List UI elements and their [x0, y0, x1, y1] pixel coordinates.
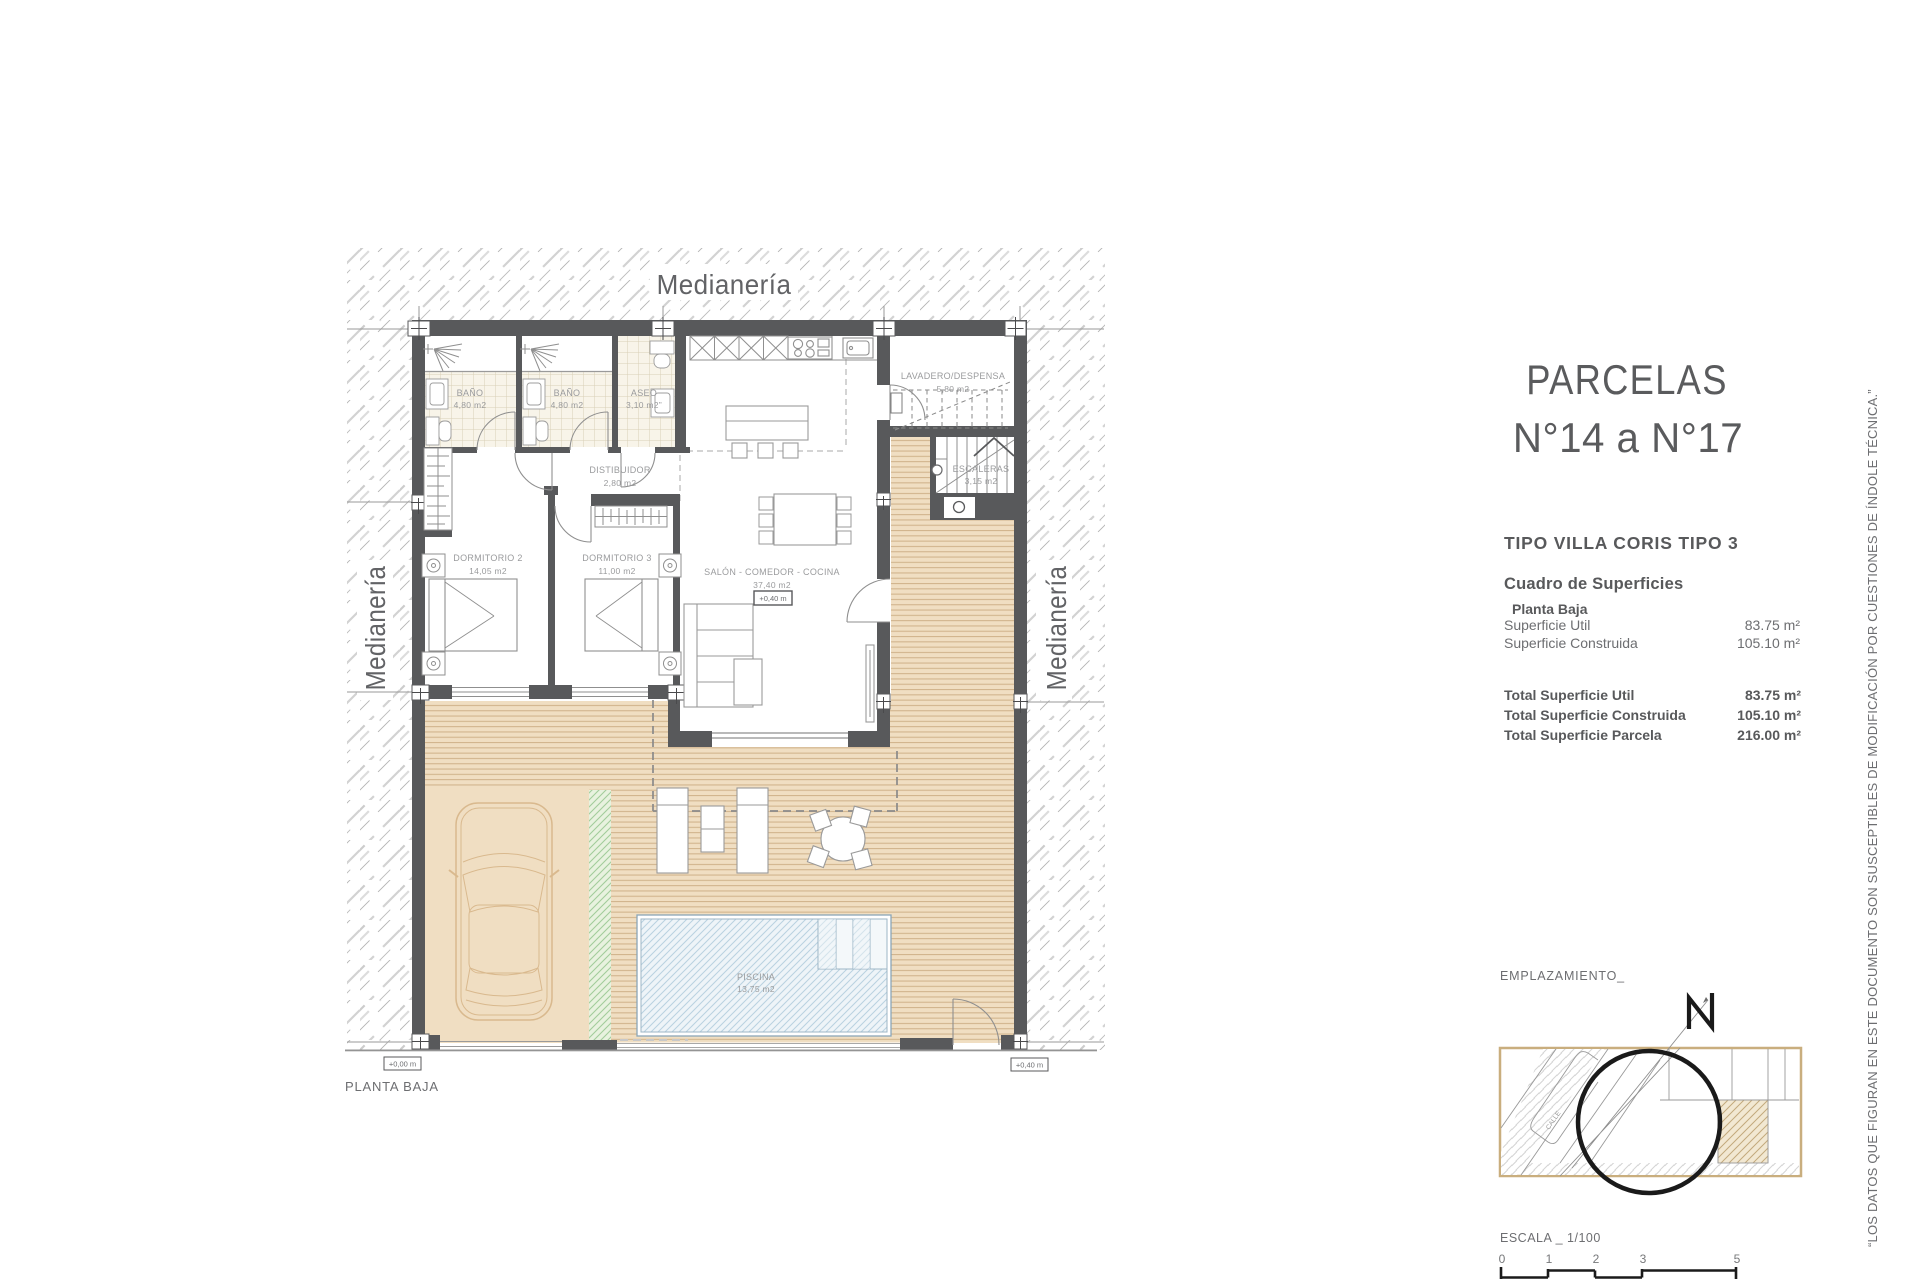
- svg-text:SALÓN - COMEDOR - COCINA: SALÓN - COMEDOR - COCINA: [704, 567, 840, 577]
- svg-text:13,75 m2: 13,75 m2: [737, 984, 775, 994]
- svg-text:DORMITORIO 3: DORMITORIO 3: [582, 553, 651, 563]
- svg-text:105.10 m²: 105.10 m²: [1737, 635, 1800, 651]
- svg-text:1: 1: [1546, 1252, 1553, 1266]
- svg-text:Planta Baja: Planta Baja: [1512, 601, 1588, 617]
- svg-text:DISTIBUIDOR: DISTIBUIDOR: [589, 465, 651, 475]
- svg-text:83.75 m²: 83.75 m²: [1745, 687, 1801, 703]
- svg-text:5: 5: [1734, 1252, 1741, 1266]
- svg-text:Total Superficie Util: Total Superficie Util: [1504, 687, 1634, 703]
- svg-text:3: 3: [1640, 1252, 1647, 1266]
- svg-text:ASEO: ASEO: [631, 388, 657, 398]
- svg-text:37,40 m2: 37,40 m2: [753, 580, 791, 590]
- svg-text:Superficie Util: Superficie Util: [1504, 617, 1590, 633]
- svg-text:Superficie Construida: Superficie Construida: [1504, 635, 1638, 651]
- svg-text:4,80 m2: 4,80 m2: [551, 400, 584, 410]
- svg-text:11,00 m2: 11,00 m2: [598, 566, 635, 576]
- svg-text:BAÑO: BAÑO: [554, 388, 581, 398]
- svg-text:DORMITORIO 2: DORMITORIO 2: [453, 553, 522, 563]
- svg-text:BAÑO: BAÑO: [457, 388, 484, 398]
- svg-text:Total Superficie Parcela: Total Superficie Parcela: [1504, 727, 1662, 743]
- svg-text:Medianería: Medianería: [1040, 566, 1072, 691]
- svg-text:+0,00 m: +0,00 m: [389, 1060, 416, 1069]
- svg-text:2,80 m2: 2,80 m2: [604, 478, 637, 488]
- svg-text:ESCALA _ 1/100: ESCALA _ 1/100: [1500, 1231, 1601, 1245]
- svg-text:N°14 a N°17: N°14 a N°17: [1513, 414, 1743, 461]
- svg-text:Cuadro de Superficies: Cuadro de Superficies: [1504, 575, 1683, 593]
- svg-text:83.75 m²: 83.75 m²: [1745, 617, 1801, 633]
- svg-text:PISCINA: PISCINA: [737, 972, 775, 982]
- svg-text:EMPLAZAMIENTO_: EMPLAZAMIENTO_: [1500, 969, 1625, 983]
- svg-text:+0,40 m: +0,40 m: [1016, 1061, 1043, 1070]
- svg-text:PLANTA BAJA: PLANTA BAJA: [345, 1079, 439, 1094]
- svg-text:“LOS DATOS QUE FIGURAN EN ESTE: “LOS DATOS QUE FIGURAN EN ESTE DOCUMENTO…: [1865, 389, 1880, 1247]
- svg-text:PARCELAS: PARCELAS: [1526, 357, 1727, 404]
- svg-text:LAVADERO/DESPENSA: LAVADERO/DESPENSA: [901, 371, 1005, 381]
- svg-text:Medianería: Medianería: [657, 269, 792, 300]
- svg-text:ESCALERAS: ESCALERAS: [953, 464, 1010, 474]
- svg-text:105.10 m²: 105.10 m²: [1737, 707, 1801, 723]
- svg-text:Medianería: Medianería: [359, 566, 391, 691]
- svg-text:14,05 m2: 14,05 m2: [469, 566, 507, 576]
- svg-text:Total Superficie Construida: Total Superficie Construida: [1504, 707, 1686, 723]
- svg-text:4,80 m2: 4,80 m2: [454, 400, 487, 410]
- svg-text:3,10 m2”: 3,10 m2”: [626, 400, 662, 410]
- svg-text:3,15 m2: 3,15 m2: [965, 476, 998, 486]
- svg-text:2: 2: [1593, 1252, 1600, 1266]
- svg-text:5,80 m2: 5,80 m2: [937, 384, 970, 394]
- svg-text:+0,40 m: +0,40 m: [759, 594, 786, 603]
- svg-text:216.00 m²: 216.00 m²: [1737, 727, 1801, 743]
- svg-text:0: 0: [1499, 1252, 1506, 1266]
- svg-text:TIPO VILLA CORIS TIPO 3: TIPO VILLA CORIS TIPO 3: [1504, 533, 1739, 553]
